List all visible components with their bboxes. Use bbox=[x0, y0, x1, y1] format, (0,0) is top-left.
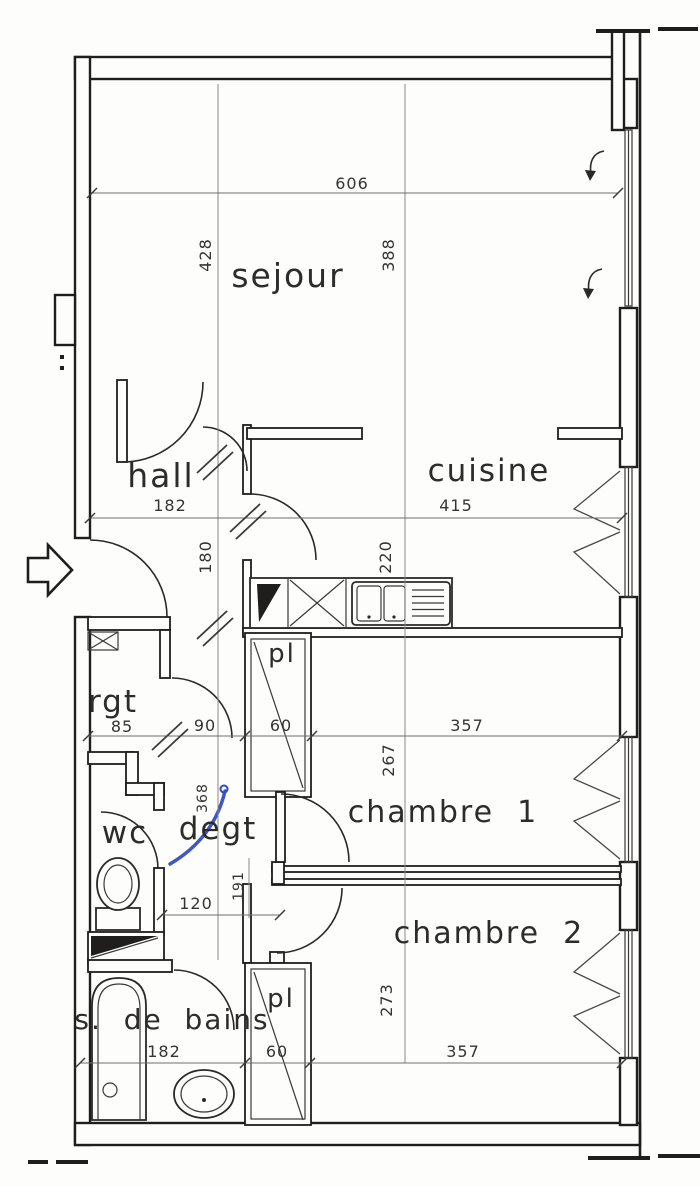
wall-left-upper bbox=[75, 57, 90, 538]
dim-180: 180 bbox=[196, 540, 215, 574]
dim-60-bottom: 60 bbox=[266, 1042, 288, 1061]
dim-388: 388 bbox=[379, 238, 398, 272]
window-open-arrow-icon bbox=[589, 269, 602, 292]
door-arc-hall bbox=[123, 382, 203, 462]
dim-606: 606 bbox=[335, 174, 369, 193]
wall-rgt-east bbox=[160, 630, 170, 678]
casement-chevrons bbox=[574, 471, 620, 594]
room-label-pl-bottom: pl bbox=[267, 984, 295, 1014]
door-leaf-hall bbox=[117, 380, 127, 462]
wall-pier-left bbox=[55, 295, 75, 345]
door-arc-chambre2 bbox=[277, 888, 342, 953]
pier-dot bbox=[60, 366, 64, 370]
room-label-hall: hall bbox=[127, 456, 194, 495]
room-labels: sejour hall cuisine rgt pl wc degt chamb… bbox=[74, 256, 584, 1036]
dim-357-top: 357 bbox=[450, 716, 484, 735]
room-label-chambre2: chambre 2 bbox=[394, 916, 584, 951]
room-label-pl-top: pl bbox=[268, 639, 296, 669]
arrowhead-icon bbox=[583, 288, 594, 299]
sink-drain bbox=[367, 615, 370, 618]
room-label-sdb: s. de bains bbox=[74, 1003, 269, 1036]
room-label-wc: wc bbox=[102, 815, 148, 851]
dim-182-hall: 182 bbox=[153, 496, 187, 515]
wall-chambre1-south bbox=[272, 866, 621, 872]
toilet-bowl bbox=[97, 858, 139, 910]
kitchen-counter bbox=[250, 578, 452, 628]
door-arc-sejour bbox=[203, 427, 247, 471]
dim-267: 267 bbox=[379, 743, 398, 777]
wall-right-seg4 bbox=[620, 862, 637, 930]
dim-368: 368 bbox=[195, 783, 211, 813]
dim-273: 273 bbox=[377, 983, 396, 1017]
washbasin bbox=[174, 1070, 234, 1118]
toilet bbox=[96, 858, 140, 930]
casement-chevrons bbox=[574, 933, 620, 1054]
entry-arrow-icon bbox=[28, 545, 72, 595]
bathtub bbox=[92, 978, 146, 1120]
window-open-arrow-icon bbox=[591, 151, 604, 174]
arrowhead-icon bbox=[585, 170, 596, 181]
wall-right-seg5 bbox=[620, 1058, 637, 1125]
dim-182-sdb: 182 bbox=[147, 1042, 181, 1061]
floor-plan-scan: 606 428 388 182 415 180 220 85 90 60 357… bbox=[0, 0, 700, 1186]
door-leaf-chambre1 bbox=[276, 792, 285, 862]
dim-220: 220 bbox=[376, 540, 395, 574]
wall-wc-east-lower bbox=[154, 868, 164, 935]
dim-415: 415 bbox=[439, 496, 473, 515]
wall-wc-east-upper bbox=[154, 783, 164, 810]
dim-191: 191 bbox=[231, 871, 247, 901]
wall-sejour-stub-left bbox=[247, 428, 362, 439]
wall-rgt-north bbox=[88, 617, 170, 630]
door-arc-chambre1 bbox=[281, 794, 349, 862]
sink-drain bbox=[392, 615, 395, 618]
wall-bottom bbox=[75, 1123, 640, 1145]
wall-right-seg2 bbox=[620, 308, 637, 467]
dim-428: 428 bbox=[196, 238, 215, 272]
room-label-cuisine: cuisine bbox=[428, 453, 551, 489]
door-jamb bbox=[272, 862, 284, 884]
dim-90: 90 bbox=[194, 716, 216, 735]
wall-top bbox=[75, 57, 618, 79]
wall-sejour-stub-right bbox=[558, 428, 622, 439]
pier-dot bbox=[60, 355, 64, 359]
dim-357-bottom: 357 bbox=[446, 1042, 480, 1061]
dim-120: 120 bbox=[179, 894, 213, 913]
wall-pier-top-right bbox=[612, 31, 624, 130]
wall-right-seg3 bbox=[620, 597, 637, 737]
room-label-chambre1: chambre 1 bbox=[348, 795, 538, 830]
toilet-tank bbox=[96, 908, 140, 930]
room-label-rgt: rgt bbox=[88, 684, 138, 720]
door-arc-entry bbox=[90, 540, 167, 617]
wall-chambre2-north bbox=[272, 879, 621, 885]
dim-60-top: 60 bbox=[270, 716, 292, 735]
washbasin-drain bbox=[202, 1098, 206, 1102]
room-label-sejour: sejour bbox=[231, 256, 344, 295]
wall-sdb-north bbox=[88, 960, 172, 972]
room-label-degt: degt bbox=[179, 811, 258, 847]
casement-chevrons bbox=[574, 740, 620, 859]
